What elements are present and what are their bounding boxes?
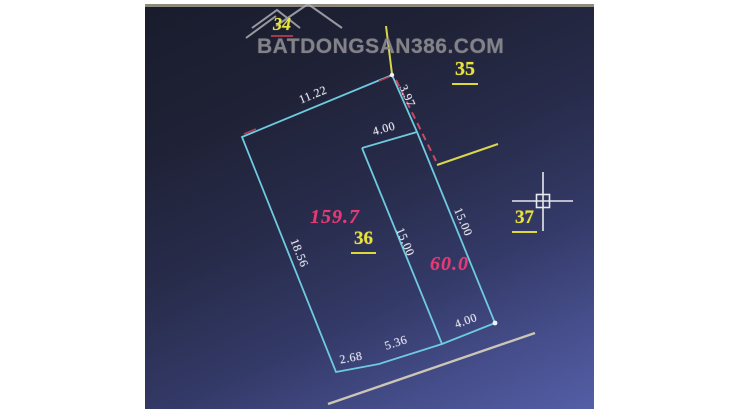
- boundary-yellow-line-right: [437, 144, 498, 165]
- area-value-lot36: 159.7: [310, 206, 360, 229]
- roof-logo-icon: [246, 4, 342, 38]
- parcel-label-34: 34: [271, 14, 293, 35]
- survey-point-dot: [493, 321, 498, 326]
- parcel-label-35: 35: [452, 58, 478, 81]
- survey-point-dot: [390, 73, 394, 77]
- survey-photo: BATDONGSAN386.COM 34 35 36 37 159.7 60.0…: [0, 0, 740, 420]
- parcel-label-37: 37: [512, 207, 537, 229]
- area-value-lot60: 60.0: [430, 253, 469, 276]
- watermark-text: BATDONGSAN386.COM: [257, 35, 504, 59]
- parcel-label-36: 36: [351, 228, 376, 250]
